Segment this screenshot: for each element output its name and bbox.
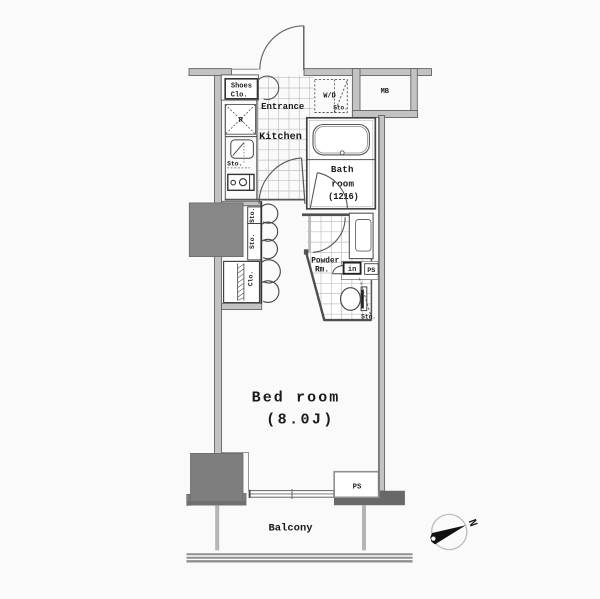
svg-text:Shoes: Shoes bbox=[231, 83, 252, 91]
svg-text:Sto.: Sto. bbox=[249, 234, 256, 249]
svg-text:Powder: Powder bbox=[311, 257, 339, 265]
svg-text:MB: MB bbox=[381, 88, 390, 96]
svg-text:Bath: Bath bbox=[331, 164, 354, 175]
svg-text:Kitchen: Kitchen bbox=[259, 131, 302, 143]
svg-text:Sto.: Sto. bbox=[361, 314, 376, 321]
svg-text:Rm.: Rm. bbox=[315, 267, 329, 275]
svg-text:Clo.: Clo. bbox=[231, 92, 248, 100]
svg-text:room: room bbox=[331, 178, 354, 189]
svg-text:Sto.: Sto. bbox=[249, 208, 256, 223]
svg-text:Balcony: Balcony bbox=[268, 523, 313, 535]
svg-text:(8.0J): (8.0J) bbox=[266, 412, 334, 429]
svg-text:in: in bbox=[348, 266, 356, 274]
svg-text:PS: PS bbox=[353, 484, 362, 492]
svg-text:Sto.: Sto. bbox=[227, 160, 242, 167]
svg-text:PS: PS bbox=[367, 267, 375, 275]
svg-text:Bed room: Bed room bbox=[252, 390, 341, 407]
svg-text:Sto.: Sto. bbox=[333, 105, 347, 112]
svg-text:Clo.: Clo. bbox=[247, 271, 254, 286]
svg-text:Entrance: Entrance bbox=[261, 102, 304, 112]
svg-text:W/D: W/D bbox=[323, 93, 336, 101]
